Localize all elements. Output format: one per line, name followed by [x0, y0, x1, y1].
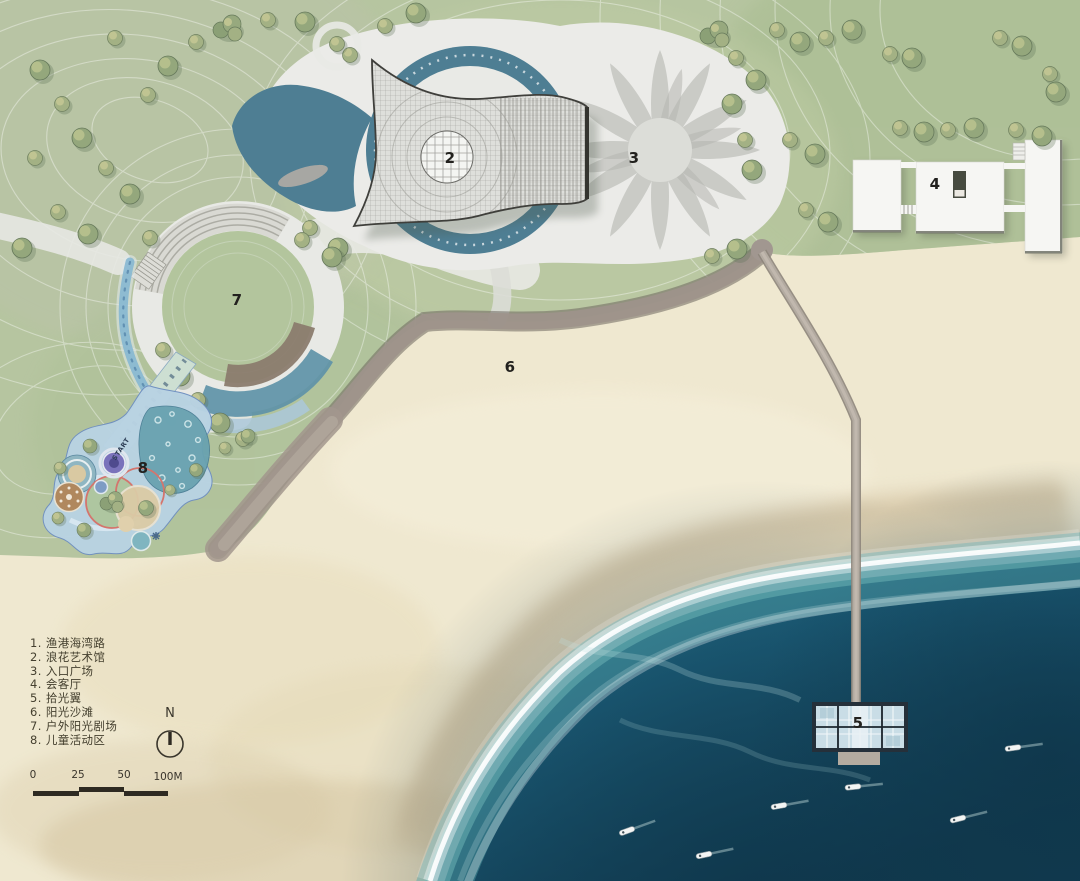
site-marker-6: 6 — [505, 358, 516, 376]
legend-item-2: 2. 浪花艺术馆 — [30, 651, 117, 665]
start-line-label: START — [110, 436, 131, 462]
legend-item-5: 5. 拾光翼 — [30, 692, 117, 706]
north-arrow: N — [144, 706, 200, 764]
scale-tick-25: 25 — [71, 769, 84, 781]
scale-segment-2 — [79, 787, 124, 792]
scale-tick-50: 50 — [117, 769, 130, 781]
site-plan: 2 3 4 5 6 7 8 START 1. 渔港海湾路 2. 浪花艺术馆 3.… — [0, 0, 1080, 881]
legend-item-8: 8. 儿童活动区 — [30, 734, 117, 748]
north-label: N — [165, 706, 175, 721]
site-marker-4: 4 — [930, 175, 941, 193]
legend-item-3: 3. 入口广场 — [30, 665, 117, 679]
legend-item-1: 1. 渔港海湾路 — [30, 637, 117, 651]
annotation-overlay: 2 3 4 5 6 7 8 START 1. 渔港海湾路 2. 浪花艺术馆 3.… — [0, 0, 1080, 881]
site-marker-8: 8 — [138, 459, 149, 477]
scale-bar: 0 25 50 100M — [0, 0, 220, 60]
site-marker-5: 5 — [853, 714, 864, 732]
site-marker-3: 3 — [629, 149, 640, 167]
scale-segment-3 — [124, 791, 168, 796]
legend: 1. 渔港海湾路 2. 浪花艺术馆 3. 入口广场 4. 会客厅 5. 拾光翼 … — [30, 637, 117, 747]
site-marker-2: 2 — [445, 149, 456, 167]
legend-item-6: 6. 阳光沙滩 — [30, 706, 117, 720]
legend-item-4: 4. 会客厅 — [30, 678, 117, 692]
legend-item-7: 7. 户外阳光剧场 — [30, 720, 117, 734]
scale-tick-100: 100M — [153, 771, 182, 783]
scale-tick-0: 0 — [30, 769, 37, 781]
scale-segment-1 — [33, 791, 79, 796]
site-marker-7: 7 — [232, 291, 243, 309]
